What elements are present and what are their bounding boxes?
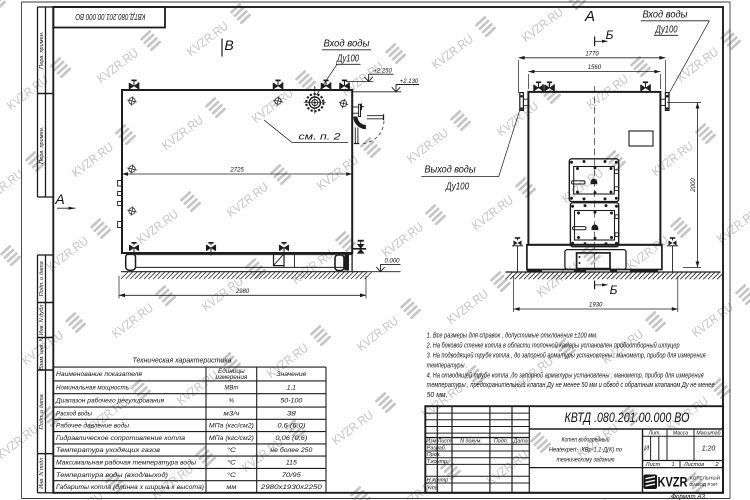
svg-text:0,6 (6,0): 0,6 (6,0) (277, 423, 305, 430)
svg-text:Инв. N дубл: Инв. N дубл (39, 304, 45, 336)
svg-text:°С: °С (227, 446, 236, 454)
svg-text:Выход воды: Выход воды (425, 164, 476, 176)
svg-text:Изм: Изм (426, 439, 436, 445)
svg-text:Значение: Значение (276, 371, 306, 378)
svg-text:1:20: 1:20 (702, 446, 716, 453)
svg-text:техническому заданию: техническому заданию (557, 455, 615, 463)
svg-text:КВТД .080.201.00.000 ВО: КВТД .080.201.00.000 ВО (565, 409, 690, 425)
svg-text:Температура воды (вход/выход): Температура воды (вход/выход) (56, 471, 168, 479)
svg-text:Номинальная мощность: Номинальная мощность (56, 385, 129, 392)
svg-text:МПа (кгс/см2): МПа (кгс/см2) (209, 423, 254, 430)
svg-text:Подп. и дата: Подп. и дата (39, 394, 45, 429)
svg-text:2000: 2000 (691, 178, 697, 193)
svg-text:Перв. примен.: Перв. примен. (39, 32, 45, 69)
svg-text:1770: 1770 (585, 51, 599, 57)
svg-text:Подп. и дата: Подп. и дата (39, 261, 45, 296)
svg-text:А: А (54, 191, 64, 207)
svg-text:2. На боковой стенке котла в: 2. На боковой стенке котла в области топ… (426, 341, 680, 350)
svg-text:КВТД.080.201.00.000 ВО: КВТД.080.201.00.000 ВО (75, 12, 145, 21)
svg-text:Т.контр.: Т.контр. (427, 459, 449, 465)
svg-text:1. Все размеры для справок ,: 1. Все размеры для справок , допустимые … (427, 331, 598, 340)
svg-text:не более 250: не более 250 (270, 446, 312, 454)
svg-text:Масса: Масса (673, 430, 688, 436)
svg-text:Габариты котла (длинна х ширин: Габариты котла (длинна х ширина х высота… (56, 483, 204, 491)
svg-text:°С: °С (227, 458, 236, 466)
svg-text:температуры .: температуры . (427, 360, 468, 369)
svg-text:2725: 2725 (229, 168, 244, 174)
svg-text:Лист: Лист (437, 439, 452, 445)
svg-text:Подп.: Подп. (494, 439, 508, 445)
svg-text:А: А (584, 8, 595, 25)
svg-text:38: 38 (287, 410, 296, 417)
svg-text:70/95: 70/95 (282, 472, 301, 479)
svg-text:Котел водогрейный: Котел водогрейный (562, 436, 610, 444)
svg-text:Вход воды: Вход воды (324, 38, 370, 50)
svg-text:1560: 1560 (588, 65, 602, 71)
svg-text:Разраб.: Разраб. (427, 446, 447, 452)
svg-text:МПа (кгс/см2): МПа (кгс/см2) (209, 435, 254, 442)
svg-text:N докум.: N докум. (460, 439, 482, 445)
svg-text:Н.контр: Н.контр (427, 478, 448, 484)
svg-text:1930: 1930 (589, 303, 603, 309)
svg-text:3. На подводящей трубе котла: 3. На подводящей трубе котла , до запорн… (427, 351, 706, 360)
svg-text:Ду100: Ду100 (445, 181, 469, 193)
svg-text:Heatexpert-. КВр-1,1-Д(К) по: Heatexpert-. КВр-1,1-Д(К) по (549, 447, 622, 454)
svg-text:м3/ч: м3/ч (223, 410, 240, 417)
svg-text:Формат А3: Формат А3 (671, 493, 705, 500)
svg-text:Б: Б (606, 28, 614, 42)
svg-text:ЗАВОД РЭП: ЗАВОД РЭП (690, 482, 718, 488)
svg-text:Масштаб: Масштаб (696, 430, 721, 436)
svg-text:+2.130: +2.130 (400, 79, 419, 85)
svg-text:Диапазон рабочего регулировани: Диапазон рабочего регулирования (55, 397, 164, 405)
svg-text:В: В (224, 37, 233, 53)
svg-text:Перв. примен.: Перв. примен. (39, 127, 45, 164)
svg-text:Пров.: Пров. (427, 452, 441, 458)
svg-text:2980х1930х2250: 2980х1930х2250 (260, 484, 323, 491)
svg-text:Дата: Дата (512, 439, 527, 445)
svg-text:Техническая характеристика: Техническая характеристика (132, 357, 231, 364)
svg-text:Температура уходящих газов: Температура уходящих газов (56, 446, 160, 454)
svg-text:115: 115 (286, 459, 297, 466)
svg-text:50 мм.: 50 мм. (427, 390, 448, 399)
svg-text:Рабочее давление воды: Рабочее давление воды (56, 422, 129, 430)
svg-text:Ду100: Ду100 (655, 24, 678, 36)
svg-text:Взам. инв. N: Взам. инв. N (39, 337, 45, 371)
svg-text:Утв.: Утв. (426, 486, 439, 492)
svg-text:0,06 (0,6): 0,06 (0,6) (275, 435, 307, 442)
svg-text:Расход воды: Расход воды (56, 409, 92, 417)
svg-text:0.000: 0.000 (384, 259, 400, 265)
svg-text:температуры , предохранительны: температуры , предохранительный клапан Д… (427, 380, 715, 389)
svg-text:Лит.: Лит. (648, 430, 661, 436)
svg-text:50-100: 50-100 (280, 398, 302, 405)
svg-text:измерения: измерения (215, 374, 248, 381)
svg-text:+2.250: +2.250 (373, 69, 392, 75)
svg-text:KVZR: KVZR (658, 475, 688, 490)
svg-text:Гидравлическое сопротивление к: Гидравлическое сопротивление котла (56, 434, 185, 442)
svg-text:Инв. N подл: Инв. N подл (39, 457, 45, 489)
svg-text:°С: °С (227, 471, 236, 479)
svg-text:Б: Б (610, 283, 618, 297)
svg-text:%: % (229, 398, 234, 405)
svg-text:Наименование показателя: Наименование показателя (56, 371, 142, 378)
svg-text:1,1: 1,1 (287, 385, 296, 392)
svg-text:4. На отводящей трубе котла ,: 4. На отводящей трубе котла ,до запорной… (427, 370, 704, 379)
svg-text:2980: 2980 (235, 289, 250, 295)
svg-text:мм: мм (226, 484, 237, 491)
svg-text:см. п. 2: см. п. 2 (299, 132, 342, 143)
svg-text:Вход воды: Вход воды (643, 9, 688, 21)
svg-text:МВт: МВт (224, 385, 238, 392)
svg-text:Максимальная рабочая температу: Максимальная рабочая температура воды (56, 458, 196, 466)
svg-text:Ду100: Ду100 (336, 53, 359, 65)
